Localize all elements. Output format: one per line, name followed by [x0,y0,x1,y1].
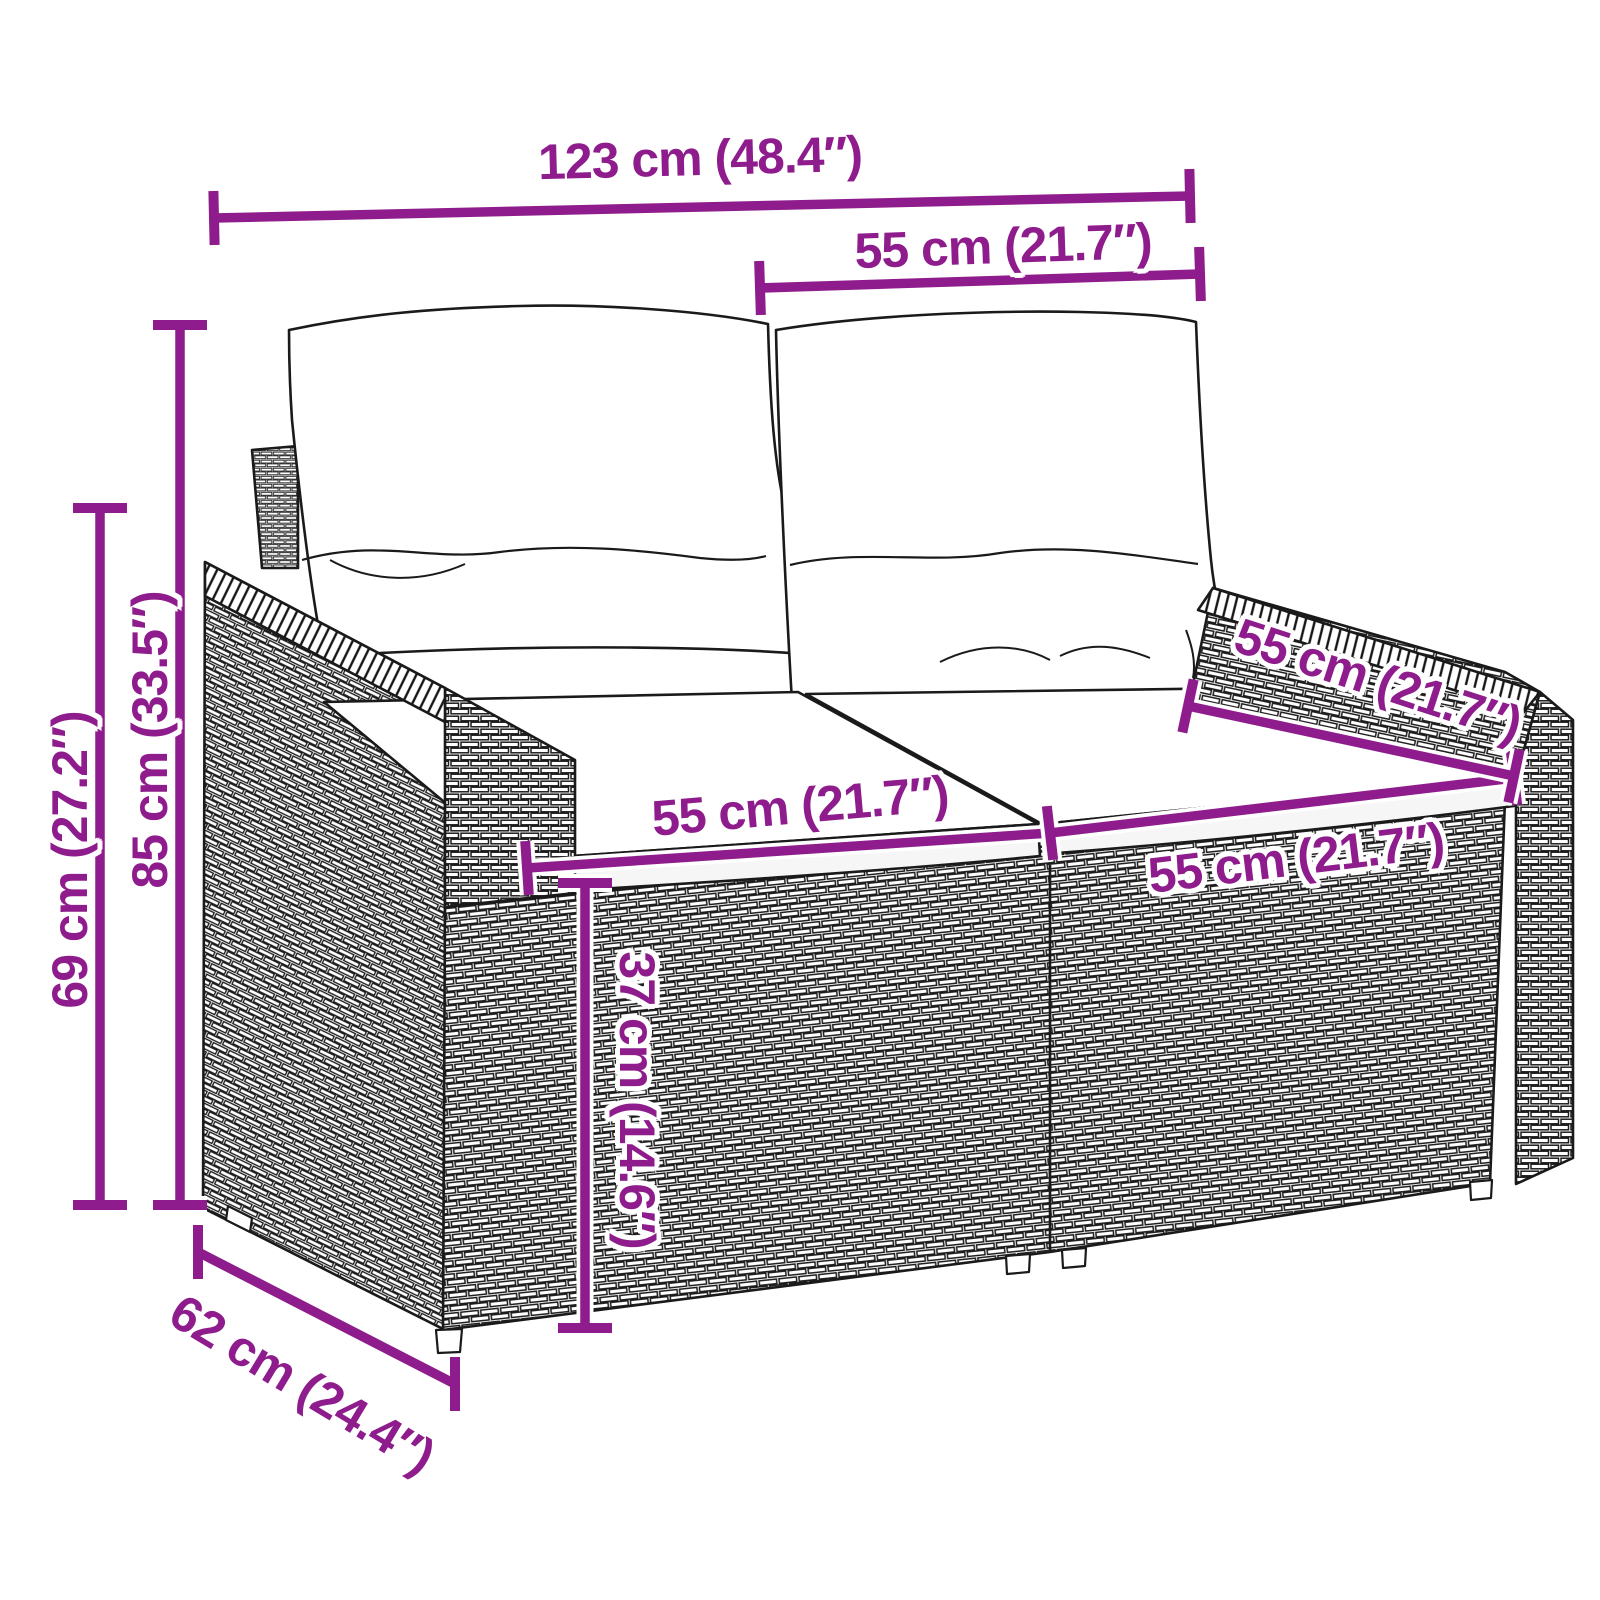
dimension-diagram: 123 cm (48.4″) 55 cm (21.7″) 85 cm (33.5… [0,0,1600,1600]
sofa-foot-center-right [1062,1248,1086,1268]
back-cushion-right [776,312,1248,706]
dim-label-seat-height: 37 cm (14.6″) [612,951,662,1248]
back-post-left [252,446,298,568]
dim-label-backrest-section-width: 55 cm (21.7″) [854,216,1153,276]
back-cushion-left [289,306,807,656]
sofa-foot-front-right [1470,1180,1492,1200]
dim-label-armrest-height: 69 cm (27.2″) [45,711,95,1008]
sofa-foot-front-left [436,1329,462,1353]
dim-label-overall-width: 123 cm (48.4″) [537,129,862,187]
dim-label-overall-height: 85 cm (33.5″) [125,591,175,888]
sofa-foot-center-left [1006,1254,1030,1274]
